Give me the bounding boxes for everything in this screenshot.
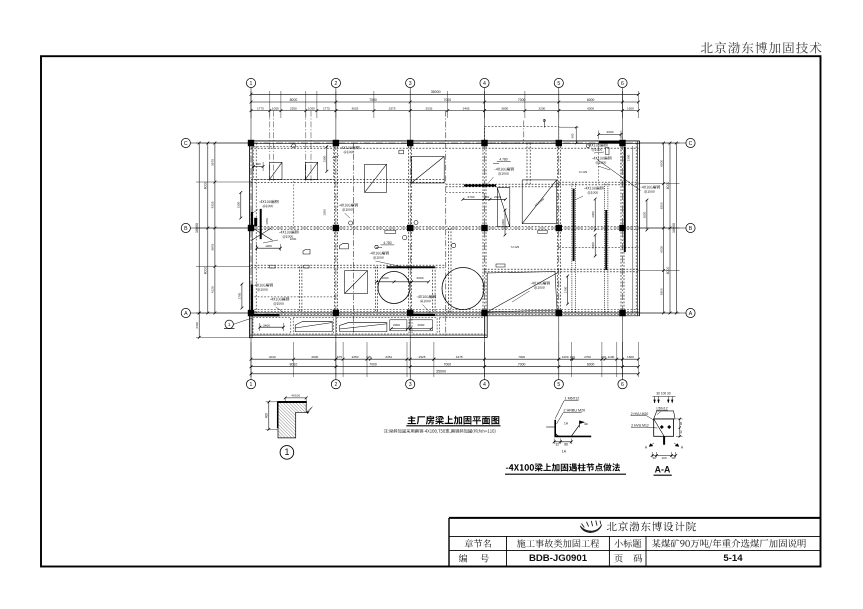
svg-text:2 HRBU M20: 2 HRBU M20 xyxy=(564,408,586,412)
svg-text:B: B xyxy=(184,226,188,232)
svg-text:C: C xyxy=(689,141,693,147)
svg-text:h=129: h=129 xyxy=(579,170,588,174)
svg-text:A-A: A-A xyxy=(655,464,671,474)
svg-text:500: 500 xyxy=(485,195,490,199)
svg-text:7000: 7000 xyxy=(518,98,526,102)
svg-text:160: 160 xyxy=(570,355,575,359)
svg-text:3875: 3875 xyxy=(211,244,215,251)
svg-text:1: 1 xyxy=(250,81,253,87)
svg-text:3675: 3675 xyxy=(211,159,215,166)
svg-text:900: 900 xyxy=(256,162,261,166)
svg-text:1: 1 xyxy=(250,382,253,388)
svg-text:6000: 6000 xyxy=(659,246,663,253)
svg-text:2 HVU M12: 2 HVU M12 xyxy=(631,423,649,427)
svg-text:8000: 8000 xyxy=(204,267,208,275)
svg-text:3300: 3300 xyxy=(591,211,595,218)
svg-text:1200: 1200 xyxy=(562,355,569,359)
svg-text:3300: 3300 xyxy=(591,242,595,249)
svg-text:16000: 16000 xyxy=(672,223,676,233)
svg-text:6000: 6000 xyxy=(587,363,595,367)
svg-text:2: 2 xyxy=(334,382,337,388)
svg-text:30: 30 xyxy=(672,456,676,460)
svg-text:8000: 8000 xyxy=(666,182,670,190)
svg-text:6000: 6000 xyxy=(587,98,595,102)
svg-text:2000: 2000 xyxy=(393,323,400,327)
svg-text:6000: 6000 xyxy=(587,107,594,111)
svg-text:7000: 7000 xyxy=(518,363,526,367)
svg-text:98: 98 xyxy=(679,422,683,426)
svg-text:3465: 3465 xyxy=(463,107,470,111)
svg-text:2700: 2700 xyxy=(468,195,475,199)
svg-text:1 M6X12: 1 M6X12 xyxy=(565,397,580,401)
svg-text:2000: 2000 xyxy=(417,276,424,280)
svg-text:1775: 1775 xyxy=(323,107,330,111)
svg-text:32: 32 xyxy=(679,430,683,434)
svg-text:2350: 2350 xyxy=(290,107,297,111)
svg-text:1300: 1300 xyxy=(626,154,630,161)
svg-text:2250: 2250 xyxy=(352,355,359,359)
svg-text:2 HVU M20: 2 HVU M20 xyxy=(631,412,649,416)
svg-text:2700: 2700 xyxy=(238,292,242,299)
svg-text:1: 1 xyxy=(284,447,289,457)
svg-text:4000: 4000 xyxy=(311,355,318,359)
svg-text:BDB-JG0901: BDB-JG0901 xyxy=(529,553,588,564)
svg-text:30 100 30: 30 100 30 xyxy=(656,392,670,396)
svg-text:3400: 3400 xyxy=(263,323,270,327)
svg-text:1A: 1A xyxy=(562,450,567,454)
svg-text:1050: 1050 xyxy=(272,107,279,111)
svg-text:35000: 35000 xyxy=(436,370,446,374)
svg-text:600: 600 xyxy=(570,133,574,138)
svg-text:2700: 2700 xyxy=(584,355,591,359)
svg-text:3625: 3625 xyxy=(351,107,358,111)
svg-text:4.780: 4.780 xyxy=(499,157,507,161)
svg-text:8000: 8000 xyxy=(290,98,298,102)
svg-text:5: 5 xyxy=(557,81,560,87)
svg-text:A: A xyxy=(689,311,693,317)
svg-text:3800: 3800 xyxy=(501,107,508,111)
svg-text:2050: 2050 xyxy=(643,211,647,218)
svg-text:3535: 3535 xyxy=(426,107,433,111)
svg-text:h=129: h=129 xyxy=(511,245,520,249)
svg-text:4010: 4010 xyxy=(269,355,276,359)
svg-text:4.780: 4.780 xyxy=(383,241,391,245)
svg-text:7000: 7000 xyxy=(444,363,452,367)
svg-text:400: 400 xyxy=(265,413,269,419)
svg-text:5: 5 xyxy=(557,382,560,388)
svg-text:C: C xyxy=(184,141,188,147)
svg-text:L50x12: L50x12 xyxy=(657,407,668,411)
svg-text:7000: 7000 xyxy=(444,98,452,102)
svg-text:100: 100 xyxy=(661,456,666,460)
svg-text:3: 3 xyxy=(409,382,412,388)
svg-text:8000: 8000 xyxy=(204,182,208,190)
svg-text:4125: 4125 xyxy=(211,286,215,293)
svg-text:4475: 4475 xyxy=(456,355,463,359)
svg-text:7000: 7000 xyxy=(369,98,377,102)
svg-text:1200: 1200 xyxy=(323,209,327,216)
svg-text:2300: 2300 xyxy=(501,219,505,226)
svg-text:5-14: 5-14 xyxy=(723,553,743,564)
svg-text:1050: 1050 xyxy=(308,107,315,111)
svg-text:6: 6 xyxy=(621,382,624,388)
svg-text:B: B xyxy=(689,226,693,232)
svg-text:35000: 35000 xyxy=(431,90,441,94)
svg-text:3300: 3300 xyxy=(237,201,241,208)
svg-text:2000: 2000 xyxy=(607,130,614,134)
svg-text:3: 3 xyxy=(409,81,412,87)
svg-text:16000: 16000 xyxy=(195,223,199,233)
svg-text:4a: 4a xyxy=(584,422,588,426)
svg-text:1: 1 xyxy=(228,322,231,327)
svg-text:3375: 3375 xyxy=(389,107,396,111)
svg-text:6000: 6000 xyxy=(659,160,663,167)
svg-text:2: 2 xyxy=(334,81,337,87)
svg-text:3451: 3451 xyxy=(385,355,392,359)
svg-text:1500: 1500 xyxy=(627,355,634,359)
svg-text:2525: 2525 xyxy=(419,355,426,359)
svg-text:7000: 7000 xyxy=(369,363,377,367)
svg-text:2000: 2000 xyxy=(494,195,501,199)
svg-text:1700: 1700 xyxy=(563,286,567,293)
svg-text:2000: 2000 xyxy=(382,276,389,280)
svg-text:32: 32 xyxy=(556,442,560,446)
svg-text:1200: 1200 xyxy=(265,244,272,248)
svg-text:2340: 2340 xyxy=(195,321,199,328)
svg-text:6200: 6200 xyxy=(659,202,663,209)
svg-text:4325: 4325 xyxy=(211,201,215,208)
svg-text:3200: 3200 xyxy=(538,107,545,111)
svg-text:8000: 8000 xyxy=(666,267,670,275)
svg-text:1500: 1500 xyxy=(627,107,634,111)
svg-text:3300: 3300 xyxy=(323,155,327,162)
svg-text:675: 675 xyxy=(337,355,342,359)
svg-text:88: 88 xyxy=(564,442,568,446)
svg-text:1700: 1700 xyxy=(265,218,269,225)
svg-text:7000: 7000 xyxy=(518,355,525,359)
svg-text:6: 6 xyxy=(621,81,624,87)
svg-text:2000: 2000 xyxy=(417,323,424,327)
svg-text:4X100: 4X100 xyxy=(291,394,300,398)
svg-text:4: 4 xyxy=(483,382,486,388)
svg-text:1100: 1100 xyxy=(608,355,615,359)
svg-text:A: A xyxy=(184,311,188,317)
svg-text:2200: 2200 xyxy=(290,237,297,241)
svg-text:1775: 1775 xyxy=(257,107,264,111)
svg-text:30: 30 xyxy=(653,456,657,460)
svg-text:6300: 6300 xyxy=(659,288,663,295)
svg-text:4: 4 xyxy=(483,81,486,87)
